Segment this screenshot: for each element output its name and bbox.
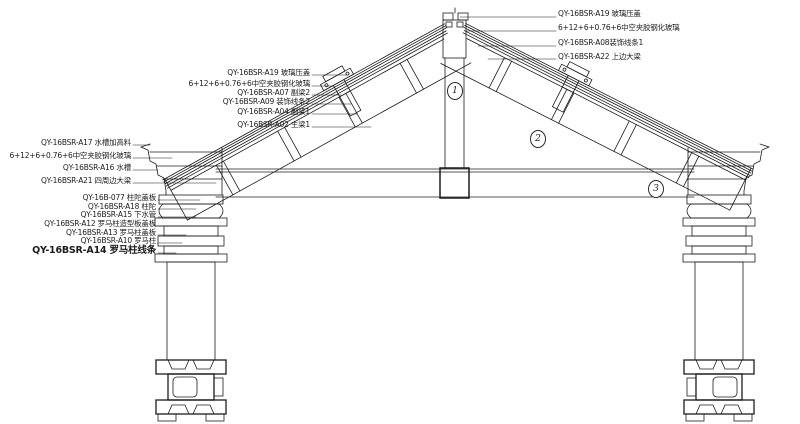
callout-secondary-beam-1: QY-16BSR-A04 副梁1 [237, 107, 310, 116]
detail-marker-1: 1 [447, 82, 463, 100]
callout-column-shape-cover: QY-16BSR-A12 罗马柱造型板盖板 [44, 219, 156, 228]
callout-main-beam-1: QY-16BSR-A02 主梁1 [237, 120, 310, 129]
callout-glass-cap-mid: QY-16BSR-A19 玻璃压盖 [227, 68, 310, 77]
callout-secondary-beam-2: QY-16BSR-A07 副梁2 [237, 88, 310, 97]
callout-downpipe: QY-16BSR-A15 下水管 [81, 210, 156, 219]
callout-upper-main-beam: QY-16BSR-A22 上边大梁 [558, 52, 641, 61]
callout-trim-line-2: QY-16BSR-A09 装饰线条2 [223, 97, 310, 106]
callout-gutter: QY-16BSR-A16 水槽 [63, 163, 131, 172]
detail-marker-3: 3 [648, 180, 664, 198]
callout-trim-line-1: QY-16BSR-A08装饰线条1 [558, 38, 643, 47]
detail-marker-2: 2 [530, 130, 546, 148]
callout-insulated-glass-top: 6+12+6+0.76+6中空夹胶钢化玻璃 [558, 23, 680, 32]
callout-bolster-cover-plate: QY-16B-077 柱陀盖板 [83, 193, 156, 202]
callout-insulated-glass-left: 6+12+6+0.76+6中空夹胶钢化玻璃 [10, 151, 132, 160]
callout-perimeter-beam: QY-16BSR-A21 四周边大梁 [41, 176, 131, 185]
callout-roman-column-trim: QY-16BSR-A14 罗马柱线条 [32, 245, 156, 256]
callout-gutter-raiser: QY-16BSR-A17 水槽加高料 [41, 138, 131, 147]
callout-insulated-glass-mid: 6+12+6+0.76+6中空夹胶钢化玻璃 [189, 79, 311, 88]
callout-glass-cap-top: QY-16BSR-A19 玻璃压盖 [558, 9, 641, 18]
detail-drawing-sheet: QY-16BSR-A19 玻璃压盖 6+12+6+0.76+6中空夹胶钢化玻璃 … [0, 0, 800, 424]
callout-roman-column: QY-16BSR-A10 罗马柱 [81, 236, 156, 245]
